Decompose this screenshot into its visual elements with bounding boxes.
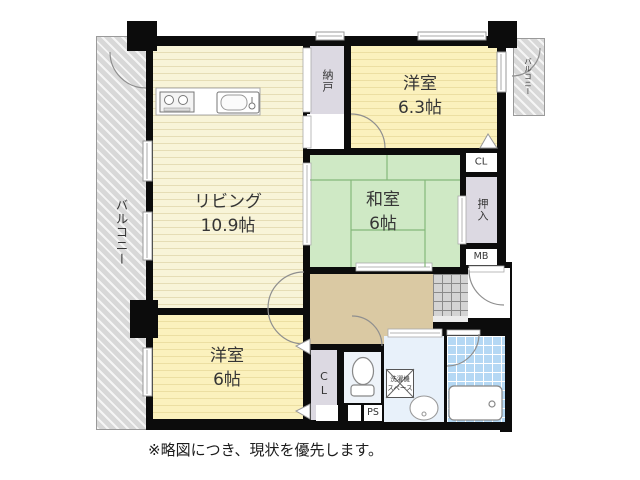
toilet-room (344, 352, 381, 403)
western63-size: 6.3帖 (398, 97, 442, 119)
western6-size: 6帖 (213, 369, 241, 391)
living-name: リビング (194, 191, 262, 213)
pillar-bottom-left (130, 300, 158, 338)
japanese6-size: 6帖 (369, 213, 397, 235)
meter-box-label: MB (474, 251, 489, 263)
living-size: 10.9帖 (201, 215, 256, 237)
laundry-label-2: スペース (387, 384, 412, 392)
hallway (310, 274, 433, 344)
entrance-step (433, 316, 468, 322)
service-box-2 (348, 405, 361, 421)
bathroom (447, 336, 505, 422)
room-living (153, 46, 303, 308)
nando-nook (307, 114, 344, 149)
japanese6-name: 和室 (366, 189, 400, 211)
balcony-left-label: バルコニー (112, 198, 131, 266)
oshiire-label: 押入 (474, 198, 490, 222)
pillar-top-left (127, 21, 157, 51)
closet-upper-label: CL (475, 156, 488, 169)
service-box-1 (316, 405, 338, 421)
closet-lower-label: CL (318, 370, 331, 398)
entrance-genkan (433, 274, 468, 316)
balcony-right-label: バルコニー (523, 57, 534, 95)
western6-name: 洋室 (210, 345, 244, 367)
laundry-label-1: 洗濯機 (390, 375, 410, 383)
floor-plan: リビング 10.9帖 洋室 6.3帖 和室 6帖 洋室 6帖 納戸 押入 CL … (0, 0, 640, 480)
nando-label: 納戸 (319, 69, 335, 93)
entry-alcove (468, 268, 510, 318)
pipe-shaft-label: PS (367, 407, 379, 419)
western63-name: 洋室 (403, 73, 437, 95)
pillar-top-right (488, 21, 517, 48)
disclaimer-note: ※略図につき、現状を優先します。 (148, 439, 383, 460)
